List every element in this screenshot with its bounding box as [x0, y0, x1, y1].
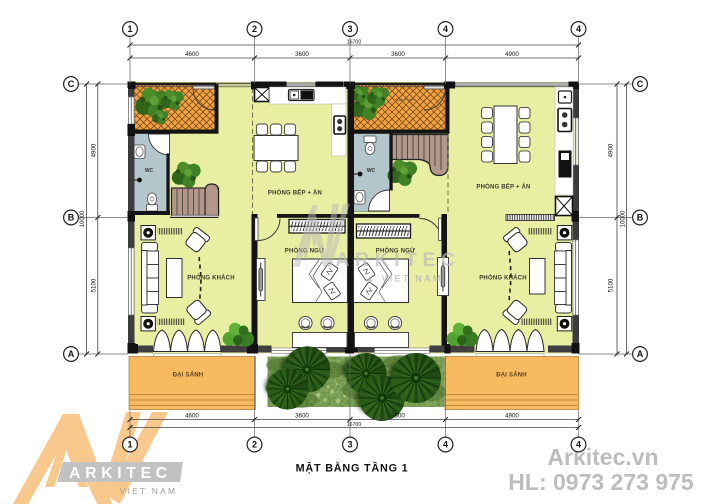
svg-text:16700: 16700 — [347, 422, 362, 428]
svg-text:5100: 5100 — [608, 278, 615, 292]
svg-text:4600: 4600 — [185, 51, 199, 58]
svg-text:1: 1 — [127, 440, 132, 450]
svg-text:1: 1 — [127, 24, 132, 34]
svg-text:ARKITEC: ARKITEC — [335, 249, 460, 271]
svg-text:WC: WC — [145, 168, 154, 174]
svg-text:WC: WC — [367, 168, 376, 174]
svg-text:10000: 10000 — [621, 210, 627, 227]
svg-text:MẶT BẰNG TẦNG 1: MẶT BẰNG TẦNG 1 — [296, 462, 409, 475]
svg-text:3: 3 — [347, 440, 352, 450]
svg-text:10000: 10000 — [80, 210, 86, 227]
svg-text:HL: 0973 273 975: HL: 0973 273 975 — [508, 469, 694, 495]
svg-text:PHÒNG BẾP + ĂN: PHÒNG BẾP + ĂN — [268, 189, 322, 197]
svg-text:PHÒNG KHÁCH: PHÒNG KHÁCH — [479, 274, 527, 282]
svg-text:5100: 5100 — [91, 278, 98, 292]
svg-text:4900: 4900 — [91, 143, 98, 157]
svg-text:4: 4 — [576, 24, 581, 34]
svg-text:4: 4 — [443, 24, 448, 34]
svg-text:4900: 4900 — [608, 143, 615, 157]
svg-text:B: B — [637, 213, 644, 223]
svg-text:A: A — [637, 349, 644, 359]
svg-text:▲ VIET NAM: ▲ VIET NAM — [365, 274, 442, 285]
svg-text:4600: 4600 — [185, 413, 199, 420]
svg-text:C: C — [68, 79, 75, 89]
svg-text:2: 2 — [252, 440, 257, 450]
svg-text:ĐẠI SẢNH: ĐẠI SẢNH — [496, 372, 527, 379]
svg-text:VIET NAM: VIET NAM — [120, 486, 178, 496]
svg-text:4900: 4900 — [505, 51, 519, 58]
svg-text:ARKITEC: ARKITEC — [69, 465, 172, 482]
svg-text:3600: 3600 — [295, 413, 309, 420]
svg-text:ĐẠI SẢNH: ĐẠI SẢNH — [173, 372, 204, 379]
svg-text:A: A — [68, 349, 75, 359]
svg-text:16700: 16700 — [347, 40, 362, 46]
svg-text:2: 2 — [252, 24, 257, 34]
svg-text:PHÒNG KHÁCH: PHÒNG KHÁCH — [187, 274, 235, 282]
svg-text:3600: 3600 — [391, 51, 405, 58]
svg-text:4: 4 — [576, 440, 581, 450]
svg-text:B: B — [68, 213, 75, 223]
svg-text:3600: 3600 — [295, 51, 309, 58]
svg-text:4900: 4900 — [505, 413, 519, 420]
svg-text:4: 4 — [443, 440, 448, 450]
svg-text:C: C — [637, 79, 644, 89]
svg-text:PHÒNG BẾP + ĂN: PHÒNG BẾP + ĂN — [476, 183, 530, 191]
svg-text:Arkitec.vn: Arkitec.vn — [547, 444, 658, 470]
svg-text:3600: 3600 — [391, 413, 405, 420]
svg-text:SÂN PHƠI: SÂN PHƠI — [395, 97, 414, 102]
svg-text:3: 3 — [347, 24, 352, 34]
